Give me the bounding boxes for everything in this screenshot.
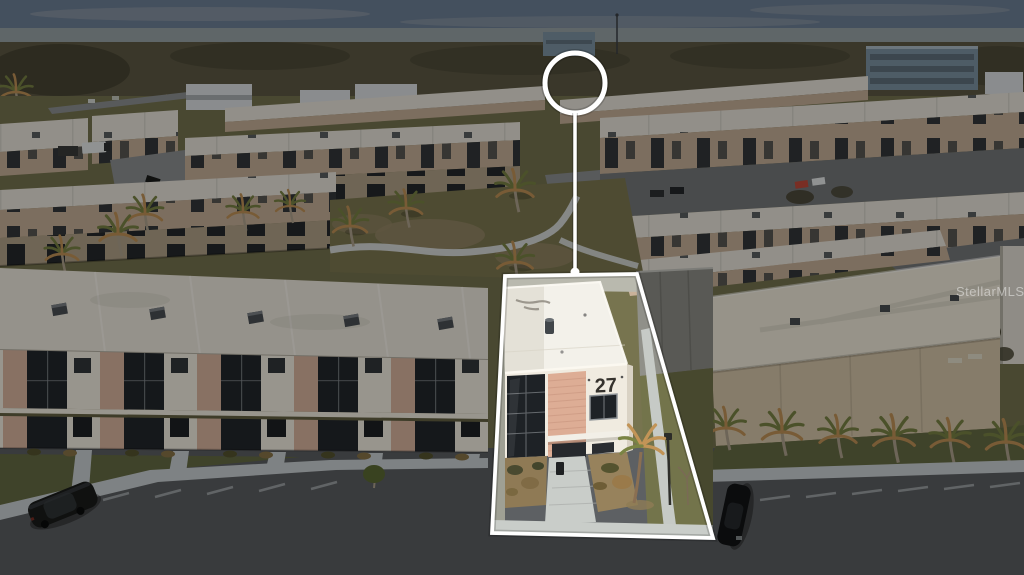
trash-bin bbox=[556, 462, 564, 475]
entry-door bbox=[552, 442, 586, 458]
aerial-photo: 27 bbox=[0, 0, 1024, 575]
pointer-dot bbox=[571, 268, 580, 277]
watermark: StellarMLS bbox=[956, 284, 1024, 299]
aerial-photo-canvas: 27 bbox=[0, 0, 1024, 575]
